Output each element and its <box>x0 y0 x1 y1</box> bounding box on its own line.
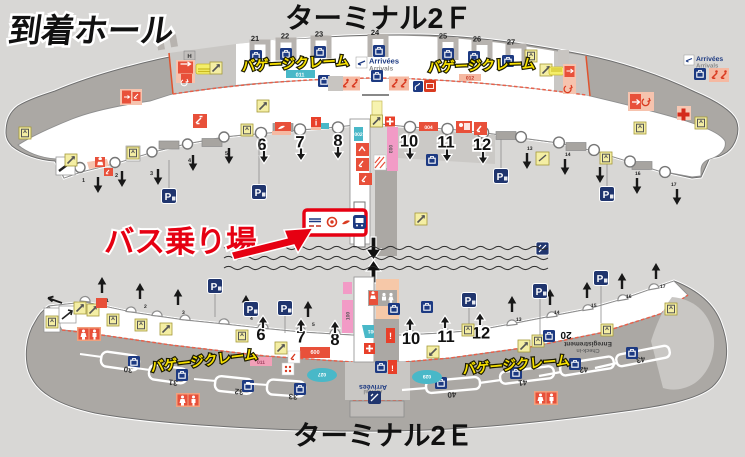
svg-text:14: 14 <box>565 152 571 158</box>
svg-text:10: 10 <box>402 330 420 348</box>
svg-text:004: 004 <box>424 125 433 131</box>
svg-text:011: 011 <box>296 73 305 79</box>
svg-text:40: 40 <box>446 390 456 400</box>
svg-text:Arrivées: Arrivées <box>369 57 399 66</box>
svg-text:2: 2 <box>144 304 147 310</box>
svg-text:41: 41 <box>517 378 527 388</box>
svg-text:14: 14 <box>554 310 560 316</box>
svg-text:!: ! <box>391 364 394 373</box>
svg-text:21: 21 <box>251 34 259 43</box>
svg-text:13: 13 <box>527 146 533 152</box>
svg-text:011: 011 <box>257 360 265 366</box>
svg-text:16: 16 <box>635 171 641 177</box>
svg-text:15: 15 <box>591 303 597 309</box>
svg-text:ターミナル2Ｅ: ターミナル2Ｅ <box>293 420 473 451</box>
svg-text:3: 3 <box>150 171 153 177</box>
svg-text:5: 5 <box>225 151 228 157</box>
svg-text:H: H <box>187 53 191 60</box>
svg-text:11: 11 <box>437 328 454 346</box>
svg-text:012: 012 <box>466 76 475 82</box>
svg-text:3: 3 <box>182 310 185 316</box>
svg-text:009: 009 <box>310 348 319 354</box>
svg-text:Enregistrement: Enregistrement <box>563 340 612 347</box>
svg-text:ターミナル2Ｆ: ターミナル2Ｆ <box>285 3 472 35</box>
svg-text:12: 12 <box>472 325 490 343</box>
svg-text:26: 26 <box>473 35 481 44</box>
svg-text:1: 1 <box>82 178 85 184</box>
svg-text:Check-in: Check-in <box>576 347 600 353</box>
svg-text:!: ! <box>389 331 392 341</box>
svg-text:027: 027 <box>318 371 327 377</box>
svg-text:到着ホール: 到着ホール <box>6 12 176 49</box>
svg-text:i: i <box>315 118 317 128</box>
svg-text:2: 2 <box>115 173 118 179</box>
svg-text:5: 5 <box>312 322 315 328</box>
svg-text:17: 17 <box>660 284 666 290</box>
svg-text:20: 20 <box>560 329 572 340</box>
svg-text:16: 16 <box>626 294 632 300</box>
svg-text:27: 27 <box>507 38 515 47</box>
svg-text:Arrivées: Arrivées <box>696 56 723 63</box>
svg-text:003: 003 <box>387 145 393 154</box>
svg-text:13: 13 <box>516 317 522 323</box>
svg-text:002: 002 <box>354 132 363 138</box>
svg-text:029: 029 <box>423 373 432 379</box>
svg-text:17: 17 <box>671 182 677 188</box>
svg-text:100: 100 <box>346 312 352 321</box>
